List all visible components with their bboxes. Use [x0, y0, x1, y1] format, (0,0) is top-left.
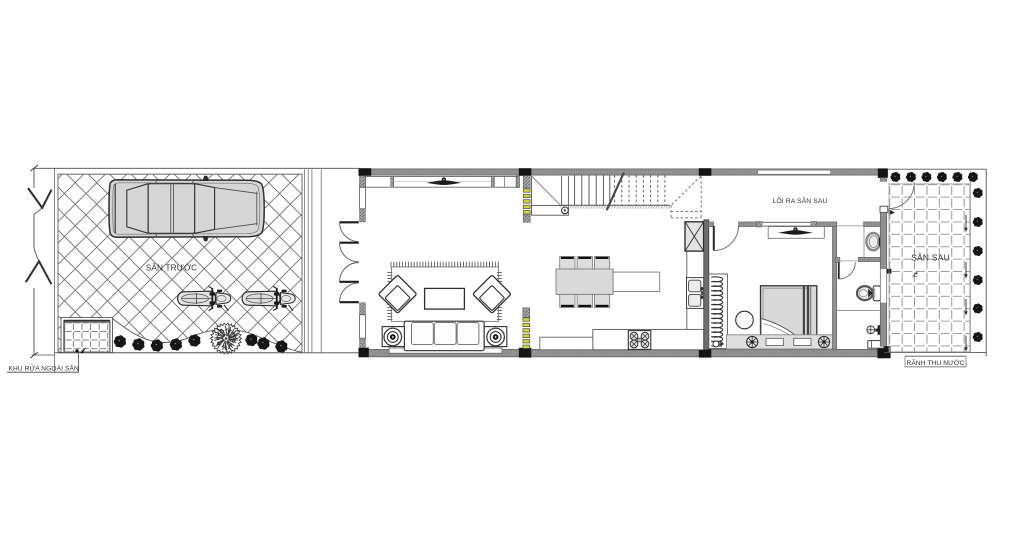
svg-text:KHU RỬA NGOÀI SÂN: KHU RỬA NGOÀI SÂN — [9, 363, 79, 372]
svg-text:SÂN SAU: SÂN SAU — [911, 252, 950, 262]
svg-text:RÃNH THU NƯỚC: RÃNH THU NƯỚC — [907, 358, 965, 367]
svg-text:SÂN TRƯỚC: SÂN TRƯỚC — [146, 263, 198, 273]
